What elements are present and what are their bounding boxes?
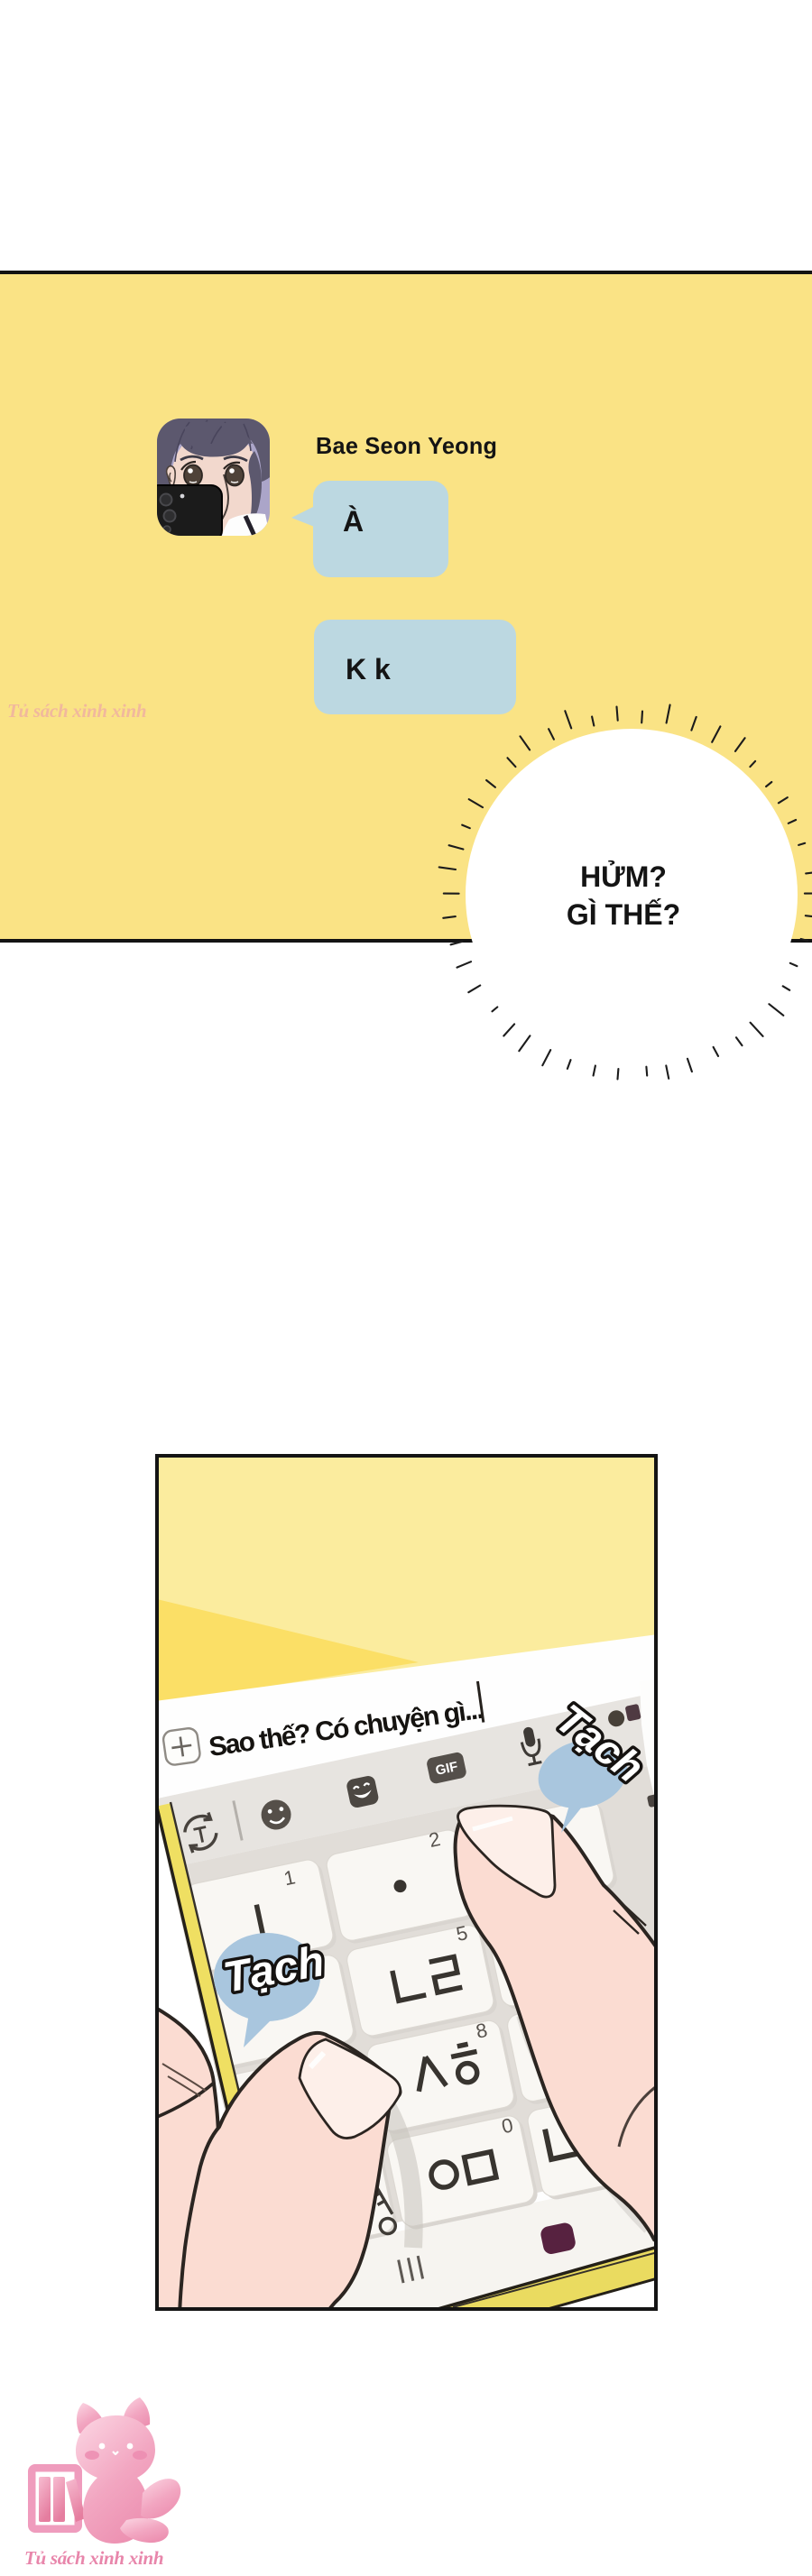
svg-text:HỬM?: HỬM?: [580, 860, 667, 893]
svg-text:GÌ THẾ?: GÌ THẾ?: [567, 898, 680, 931]
